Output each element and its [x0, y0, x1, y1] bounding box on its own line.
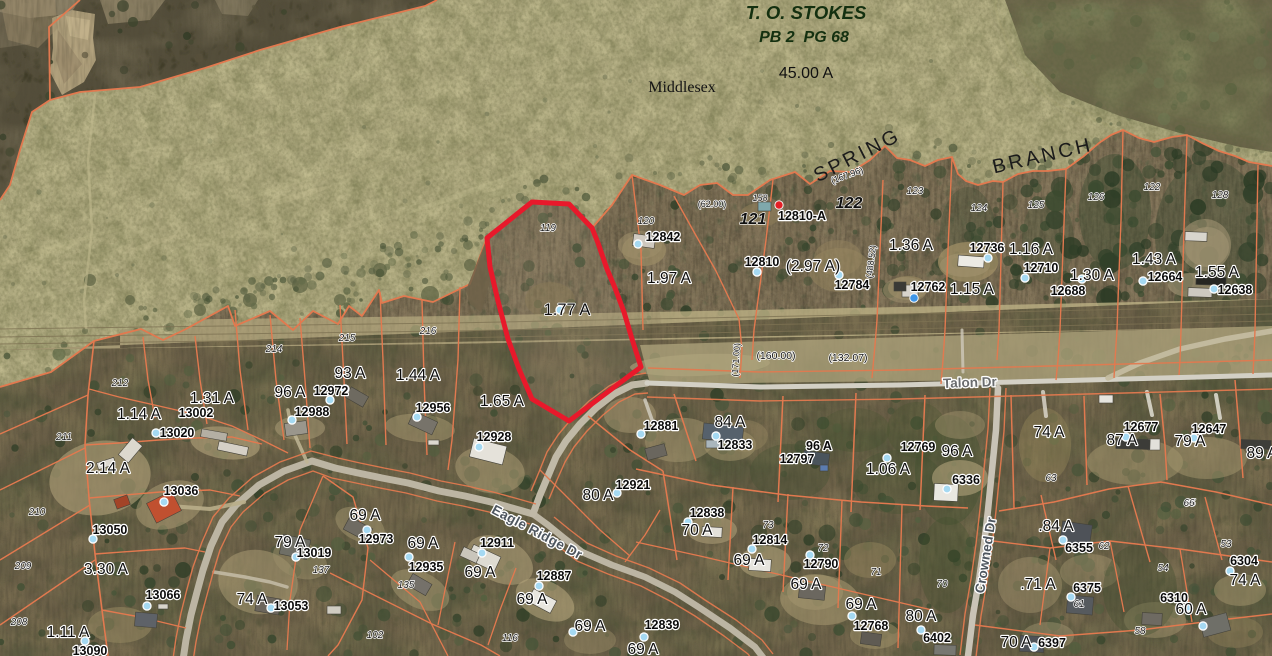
- svg-text:1.44 A: 1.44 A: [396, 367, 441, 384]
- svg-text:73: 73: [762, 520, 774, 531]
- svg-text:121: 121: [740, 211, 767, 228]
- svg-text:12768: 12768: [854, 619, 889, 633]
- svg-text:12664: 12664: [1148, 270, 1183, 284]
- svg-text:12838: 12838: [690, 506, 725, 520]
- svg-text:96 A: 96 A: [274, 384, 306, 401]
- svg-text:216: 216: [419, 326, 437, 337]
- svg-text:66: 66: [1183, 498, 1195, 509]
- svg-text:12839: 12839: [645, 618, 680, 632]
- svg-text:214: 214: [265, 344, 283, 355]
- svg-text:12762: 12762: [911, 280, 946, 294]
- svg-text:12814: 12814: [753, 533, 788, 547]
- svg-text:54: 54: [1157, 563, 1169, 574]
- svg-text:12911: 12911: [480, 536, 514, 550]
- svg-text:12921: 12921: [616, 478, 651, 492]
- svg-text:1.31 A: 1.31 A: [190, 390, 235, 407]
- svg-text:1.43 A: 1.43 A: [1132, 251, 1177, 268]
- svg-text:79 A: 79 A: [274, 534, 306, 551]
- svg-text:120: 120: [638, 216, 655, 227]
- svg-text:69 A: 69 A: [733, 552, 765, 569]
- svg-text:61: 61: [1073, 599, 1084, 610]
- svg-text:1.11 A: 1.11 A: [47, 624, 90, 641]
- svg-text:122: 122: [836, 195, 863, 212]
- svg-text:.71 A: .71 A: [1020, 576, 1056, 593]
- svg-text:208: 208: [10, 617, 28, 628]
- svg-text:63: 63: [1045, 473, 1057, 484]
- svg-text:1.14 A: 1.14 A: [117, 406, 162, 423]
- svg-text:69 A: 69 A: [845, 596, 877, 613]
- svg-text:71: 71: [870, 567, 881, 578]
- svg-text:69 A: 69 A: [407, 535, 439, 552]
- svg-text:12956: 12956: [416, 401, 451, 415]
- svg-text:(2.97 A): (2.97 A): [786, 258, 840, 275]
- svg-text:13066: 13066: [146, 588, 181, 602]
- svg-text:1.16 A: 1.16 A: [1009, 241, 1054, 258]
- svg-text:60 A: 60 A: [1175, 601, 1207, 618]
- svg-text:12736: 12736: [970, 241, 1005, 255]
- svg-text:.84 A: .84 A: [1038, 518, 1074, 535]
- svg-text:(160.00): (160.00): [756, 350, 795, 362]
- svg-text:125: 125: [1028, 200, 1045, 211]
- svg-text:Middlesex: Middlesex: [648, 79, 716, 96]
- svg-text:119: 119: [540, 223, 556, 234]
- svg-text:6336: 6336: [952, 473, 980, 487]
- svg-text:128: 128: [1212, 190, 1229, 201]
- svg-text:6304: 6304: [1230, 554, 1258, 568]
- svg-text:89 A: 89 A: [1246, 445, 1272, 462]
- svg-text:1.06 A: 1.06 A: [866, 461, 911, 478]
- svg-text:12797: 12797: [780, 452, 815, 466]
- svg-text:13002: 13002: [179, 406, 214, 420]
- svg-text:6375: 6375: [1073, 581, 1101, 595]
- svg-text:6355: 6355: [1065, 541, 1093, 555]
- svg-text:135: 135: [398, 580, 415, 591]
- svg-text:69 A: 69 A: [464, 564, 496, 581]
- svg-text:1.30 A: 1.30 A: [1070, 267, 1115, 284]
- svg-text:69 A: 69 A: [516, 591, 548, 608]
- svg-text:12935: 12935: [409, 560, 444, 574]
- svg-text:13020: 13020: [160, 426, 195, 440]
- svg-text:12810: 12810: [745, 255, 780, 269]
- svg-text:96 A: 96 A: [806, 439, 832, 453]
- svg-text:96 A: 96 A: [941, 443, 973, 460]
- svg-text:74 A: 74 A: [236, 591, 268, 608]
- svg-text:12710: 12710: [1024, 261, 1059, 275]
- svg-text:T. O. STOKES: T. O. STOKES: [746, 2, 867, 23]
- svg-text:6402: 6402: [923, 631, 951, 645]
- svg-text:13050: 13050: [93, 523, 128, 537]
- svg-text:13053: 13053: [274, 599, 309, 613]
- svg-text:12688: 12688: [1051, 284, 1086, 298]
- svg-text:12972: 12972: [314, 384, 349, 398]
- svg-text:72: 72: [817, 543, 829, 554]
- svg-text:69 A: 69 A: [627, 641, 659, 656]
- svg-text:70 A: 70 A: [681, 522, 713, 539]
- svg-text:1.77 A: 1.77 A: [544, 301, 591, 319]
- svg-text:12810-A: 12810-A: [778, 209, 826, 223]
- svg-text:6397: 6397: [1038, 636, 1066, 650]
- svg-text:158: 158: [752, 193, 767, 203]
- svg-text:74 A: 74 A: [1033, 424, 1065, 441]
- svg-text:12842: 12842: [646, 230, 681, 244]
- svg-text:12784: 12784: [835, 278, 870, 292]
- svg-text:12881: 12881: [644, 419, 679, 433]
- svg-text:1.15 A: 1.15 A: [950, 281, 995, 298]
- svg-text:102: 102: [367, 630, 384, 641]
- svg-text:12790: 12790: [804, 557, 839, 571]
- svg-text:1.55 A: 1.55 A: [1195, 264, 1240, 281]
- svg-text:123: 123: [907, 186, 924, 197]
- svg-text:212: 212: [111, 378, 129, 389]
- svg-text:12988: 12988: [295, 405, 330, 419]
- svg-text:1.97 A: 1.97 A: [647, 270, 692, 287]
- svg-text:93 A: 93 A: [334, 365, 366, 382]
- svg-text:13090: 13090: [73, 644, 108, 656]
- svg-text:PB 2 PG 68: PB 2 PG 68: [759, 29, 849, 46]
- svg-text:2.14 A: 2.14 A: [86, 460, 131, 477]
- svg-text:62: 62: [1098, 541, 1110, 552]
- svg-text:70: 70: [936, 579, 948, 590]
- svg-text:79 A: 79 A: [1174, 433, 1206, 450]
- svg-text:12928: 12928: [477, 430, 512, 444]
- svg-text:209: 209: [14, 561, 32, 572]
- svg-text:116: 116: [502, 633, 518, 644]
- svg-text:53: 53: [1220, 539, 1232, 550]
- svg-text:126: 126: [1088, 192, 1105, 203]
- svg-text:Talon Dr: Talon Dr: [943, 374, 998, 391]
- svg-text:12769: 12769: [901, 440, 936, 454]
- svg-text:80 A: 80 A: [582, 487, 614, 504]
- svg-text:12887: 12887: [537, 569, 572, 583]
- svg-text:(62.00): (62.00): [698, 199, 727, 209]
- svg-text:69 A: 69 A: [574, 618, 606, 635]
- svg-text:69 A: 69 A: [790, 576, 822, 593]
- svg-text:58: 58: [1134, 626, 1146, 637]
- svg-text:12638: 12638: [1218, 283, 1253, 297]
- svg-text:84 A: 84 A: [714, 414, 746, 431]
- svg-text:215: 215: [338, 333, 356, 344]
- svg-text:210: 210: [28, 507, 46, 518]
- svg-text:87 A: 87 A: [1106, 432, 1138, 449]
- svg-text:45.00 A: 45.00 A: [779, 65, 834, 82]
- svg-text:211: 211: [55, 432, 72, 443]
- svg-text:122: 122: [1144, 182, 1161, 193]
- svg-text:(132.07): (132.07): [828, 352, 867, 364]
- svg-text:70 A: 70 A: [1000, 634, 1032, 651]
- svg-text:1.36 A: 1.36 A: [889, 237, 934, 254]
- svg-text:13036: 13036: [164, 484, 199, 498]
- svg-text:80 A: 80 A: [905, 608, 937, 625]
- svg-text:1.65 A: 1.65 A: [480, 393, 525, 410]
- svg-text:12973: 12973: [359, 532, 394, 546]
- svg-text:69 A: 69 A: [349, 507, 381, 524]
- svg-text:124: 124: [971, 203, 988, 214]
- svg-text:12833: 12833: [718, 438, 753, 452]
- svg-text:74 A: 74 A: [1229, 572, 1261, 589]
- svg-text:3.30 A: 3.30 A: [84, 561, 129, 578]
- svg-text:137: 137: [313, 565, 330, 576]
